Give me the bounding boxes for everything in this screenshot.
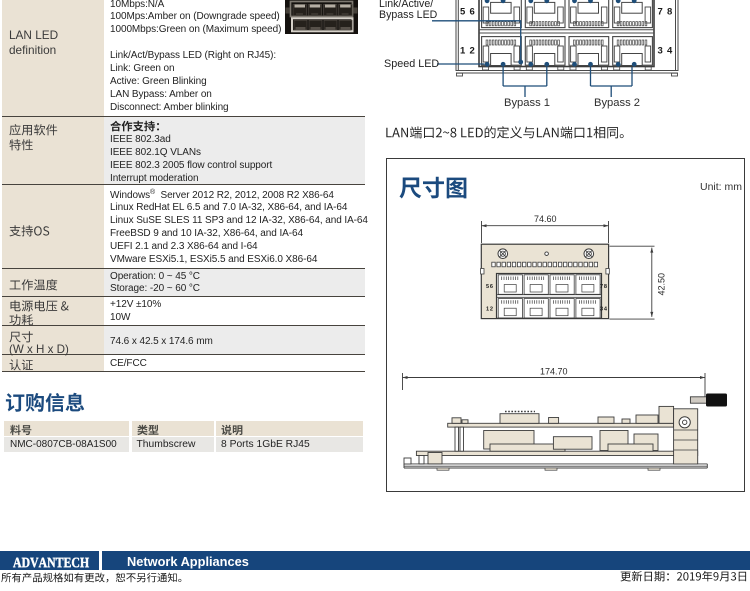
svg-text:74.60: 74.60 (534, 214, 557, 224)
svg-text:34: 34 (600, 307, 608, 313)
svg-text:174.70: 174.70 (540, 366, 568, 376)
svg-text:56: 56 (486, 284, 494, 290)
svg-text:12: 12 (460, 46, 479, 57)
svg-text:78: 78 (600, 284, 608, 290)
svg-text:42.50: 42.50 (657, 273, 667, 296)
svg-text:56: 56 (460, 7, 479, 18)
svg-text:34: 34 (658, 46, 677, 57)
svg-text:12: 12 (486, 307, 494, 313)
svg-text:78: 78 (658, 7, 677, 18)
